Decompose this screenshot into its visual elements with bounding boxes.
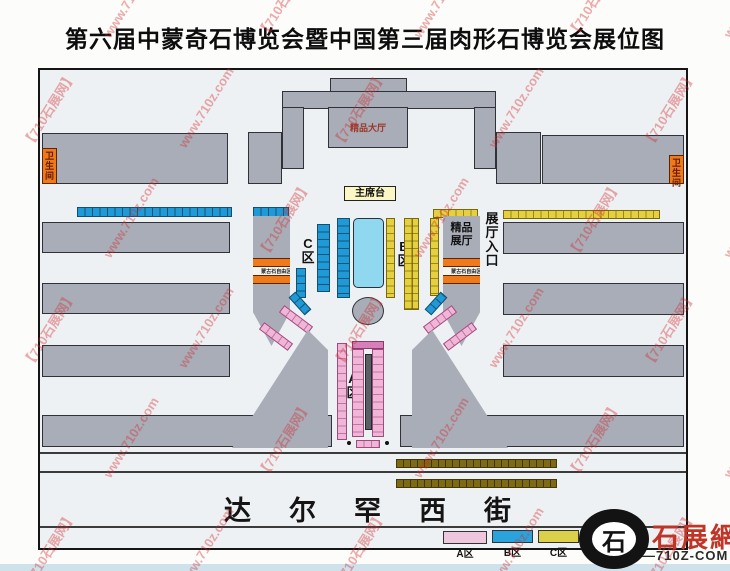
watermark-text: www.710z.com bbox=[720, 175, 730, 261]
orange-band bbox=[443, 275, 480, 284]
gate-post-dot bbox=[347, 441, 351, 445]
restroom-label-right: 卫生间 bbox=[669, 155, 684, 184]
building-bar-left-3 bbox=[42, 283, 230, 314]
boutique-hall-block: 精品大厅 bbox=[328, 107, 408, 148]
legend-label-zone-a: A区 bbox=[443, 545, 487, 560]
legend-swatch-zone-a bbox=[443, 531, 487, 544]
hall-entrance-label: 展厅入口 bbox=[484, 212, 500, 268]
mongolian-stone-band-left: 蒙古石自由区 bbox=[253, 267, 290, 275]
gate-post-dot bbox=[385, 441, 389, 445]
zone-c-booth-column-2 bbox=[337, 218, 350, 298]
hall-left-wing bbox=[248, 132, 282, 184]
stone-seal-icon: 石 bbox=[602, 522, 626, 557]
zone-a-header-band bbox=[352, 341, 384, 349]
stage-label: 主席台 bbox=[344, 186, 396, 201]
street-boundary-line-1 bbox=[40, 452, 686, 454]
central-pool bbox=[353, 218, 384, 288]
scanned-floorplan-page: 第六届中蒙奇石博览会暨中国第三届肉形石博览会展位图 精品大厅 卫生间 卫生间 主… bbox=[0, 0, 730, 571]
mongolian-stone-band-right: 蒙古石自由区 bbox=[443, 267, 480, 275]
legend-label-zone-b: B区 bbox=[492, 544, 533, 559]
building-bar-left-4 bbox=[42, 345, 230, 377]
site-logo-circle: 石 bbox=[579, 509, 649, 569]
zone-b-booth-column-3 bbox=[430, 218, 439, 296]
building-top-right bbox=[542, 135, 684, 184]
street-boundary-line-2 bbox=[40, 471, 686, 473]
street-name: 达尔罕西街 bbox=[224, 489, 549, 528]
watermark-text: 【710石展网】 bbox=[0, 178, 4, 262]
boutique-pavilion-label: 精品展厅 bbox=[448, 222, 475, 248]
zone-b-booth-strip-long-left bbox=[77, 207, 232, 217]
zone-a-bottom-booth-box bbox=[356, 440, 380, 448]
zone-c-booth-column-1 bbox=[317, 224, 330, 292]
zone-b-booth-column-2 bbox=[404, 218, 419, 310]
building-bar-right-3 bbox=[503, 283, 684, 315]
building-bar-right-2 bbox=[503, 222, 684, 254]
legend-swatch-zone-b bbox=[492, 530, 533, 543]
watermark-text: www.710z.com bbox=[720, 395, 730, 481]
boutique-hall-label: 精品大厅 bbox=[329, 121, 407, 134]
page-title: 第六届中蒙奇石博览会暨中国第三届肉形石博览会展位图 bbox=[0, 20, 730, 54]
zone-a-booth-column-2 bbox=[372, 349, 384, 437]
zone-c-label: C区 bbox=[300, 237, 316, 265]
street-booth-strip-2 bbox=[396, 479, 557, 488]
zone-a-booth-column-1 bbox=[352, 349, 364, 437]
watermark-text: 【710石展网】 bbox=[0, 398, 4, 482]
hall-right-wing bbox=[496, 132, 541, 184]
zone-b-booth-strip-short bbox=[253, 207, 289, 217]
street-booth-strip-1 bbox=[396, 459, 557, 468]
restroom-label-left: 卫生间 bbox=[42, 148, 57, 184]
building-top-left bbox=[42, 133, 228, 184]
orange-band bbox=[443, 258, 480, 267]
site-logo-domain: —710Z-COM bbox=[642, 548, 728, 563]
orange-band bbox=[253, 258, 290, 267]
building-bar-right-4 bbox=[503, 345, 684, 377]
orange-band bbox=[253, 275, 290, 284]
building-bar-left-2 bbox=[42, 222, 230, 253]
legend-swatch-zone-c bbox=[538, 530, 579, 543]
hall-right-arm bbox=[474, 107, 496, 169]
zone-c-booth-strip-long-right bbox=[503, 210, 660, 219]
zone-a-center-walkway bbox=[365, 354, 372, 430]
legend-label-zone-c: C区 bbox=[538, 544, 579, 559]
rotunda-circle bbox=[352, 297, 384, 325]
zone-b-booth-column-1 bbox=[386, 218, 395, 298]
hall-left-arm bbox=[282, 107, 304, 169]
